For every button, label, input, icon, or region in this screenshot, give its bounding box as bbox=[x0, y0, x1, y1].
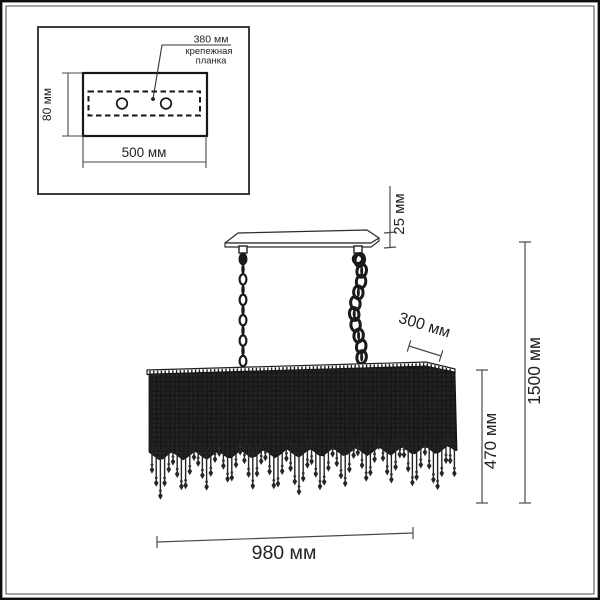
label-plate-width: 500 мм bbox=[122, 145, 167, 160]
dimension-drawing-page: 380 мм крепежная планка 80 мм 500 мм bbox=[0, 0, 600, 600]
label-bracket-length: 380 мм bbox=[194, 34, 229, 46]
label-canopy-thickness: 25 мм bbox=[391, 193, 408, 234]
label-shade-height: 470 мм bbox=[481, 413, 500, 469]
technical-drawing: 380 мм крепежная планка 80 мм 500 мм bbox=[0, 0, 600, 600]
label-total-height: 1500 мм bbox=[524, 337, 544, 405]
mounting-hole-left bbox=[117, 98, 128, 109]
mounting-hole-right bbox=[161, 98, 172, 109]
canopy-hook-left bbox=[239, 246, 247, 253]
label-bracket-name-line2: планка bbox=[196, 56, 228, 67]
inset-mounting-plate-diagram: 380 мм крепежная планка 80 мм 500 мм bbox=[38, 27, 249, 194]
label-shade-width: 980 мм bbox=[252, 542, 317, 564]
mounting-plate-outline bbox=[83, 73, 207, 136]
label-plate-height: 80 мм bbox=[40, 88, 54, 121]
canopy-hook-right bbox=[354, 246, 362, 253]
